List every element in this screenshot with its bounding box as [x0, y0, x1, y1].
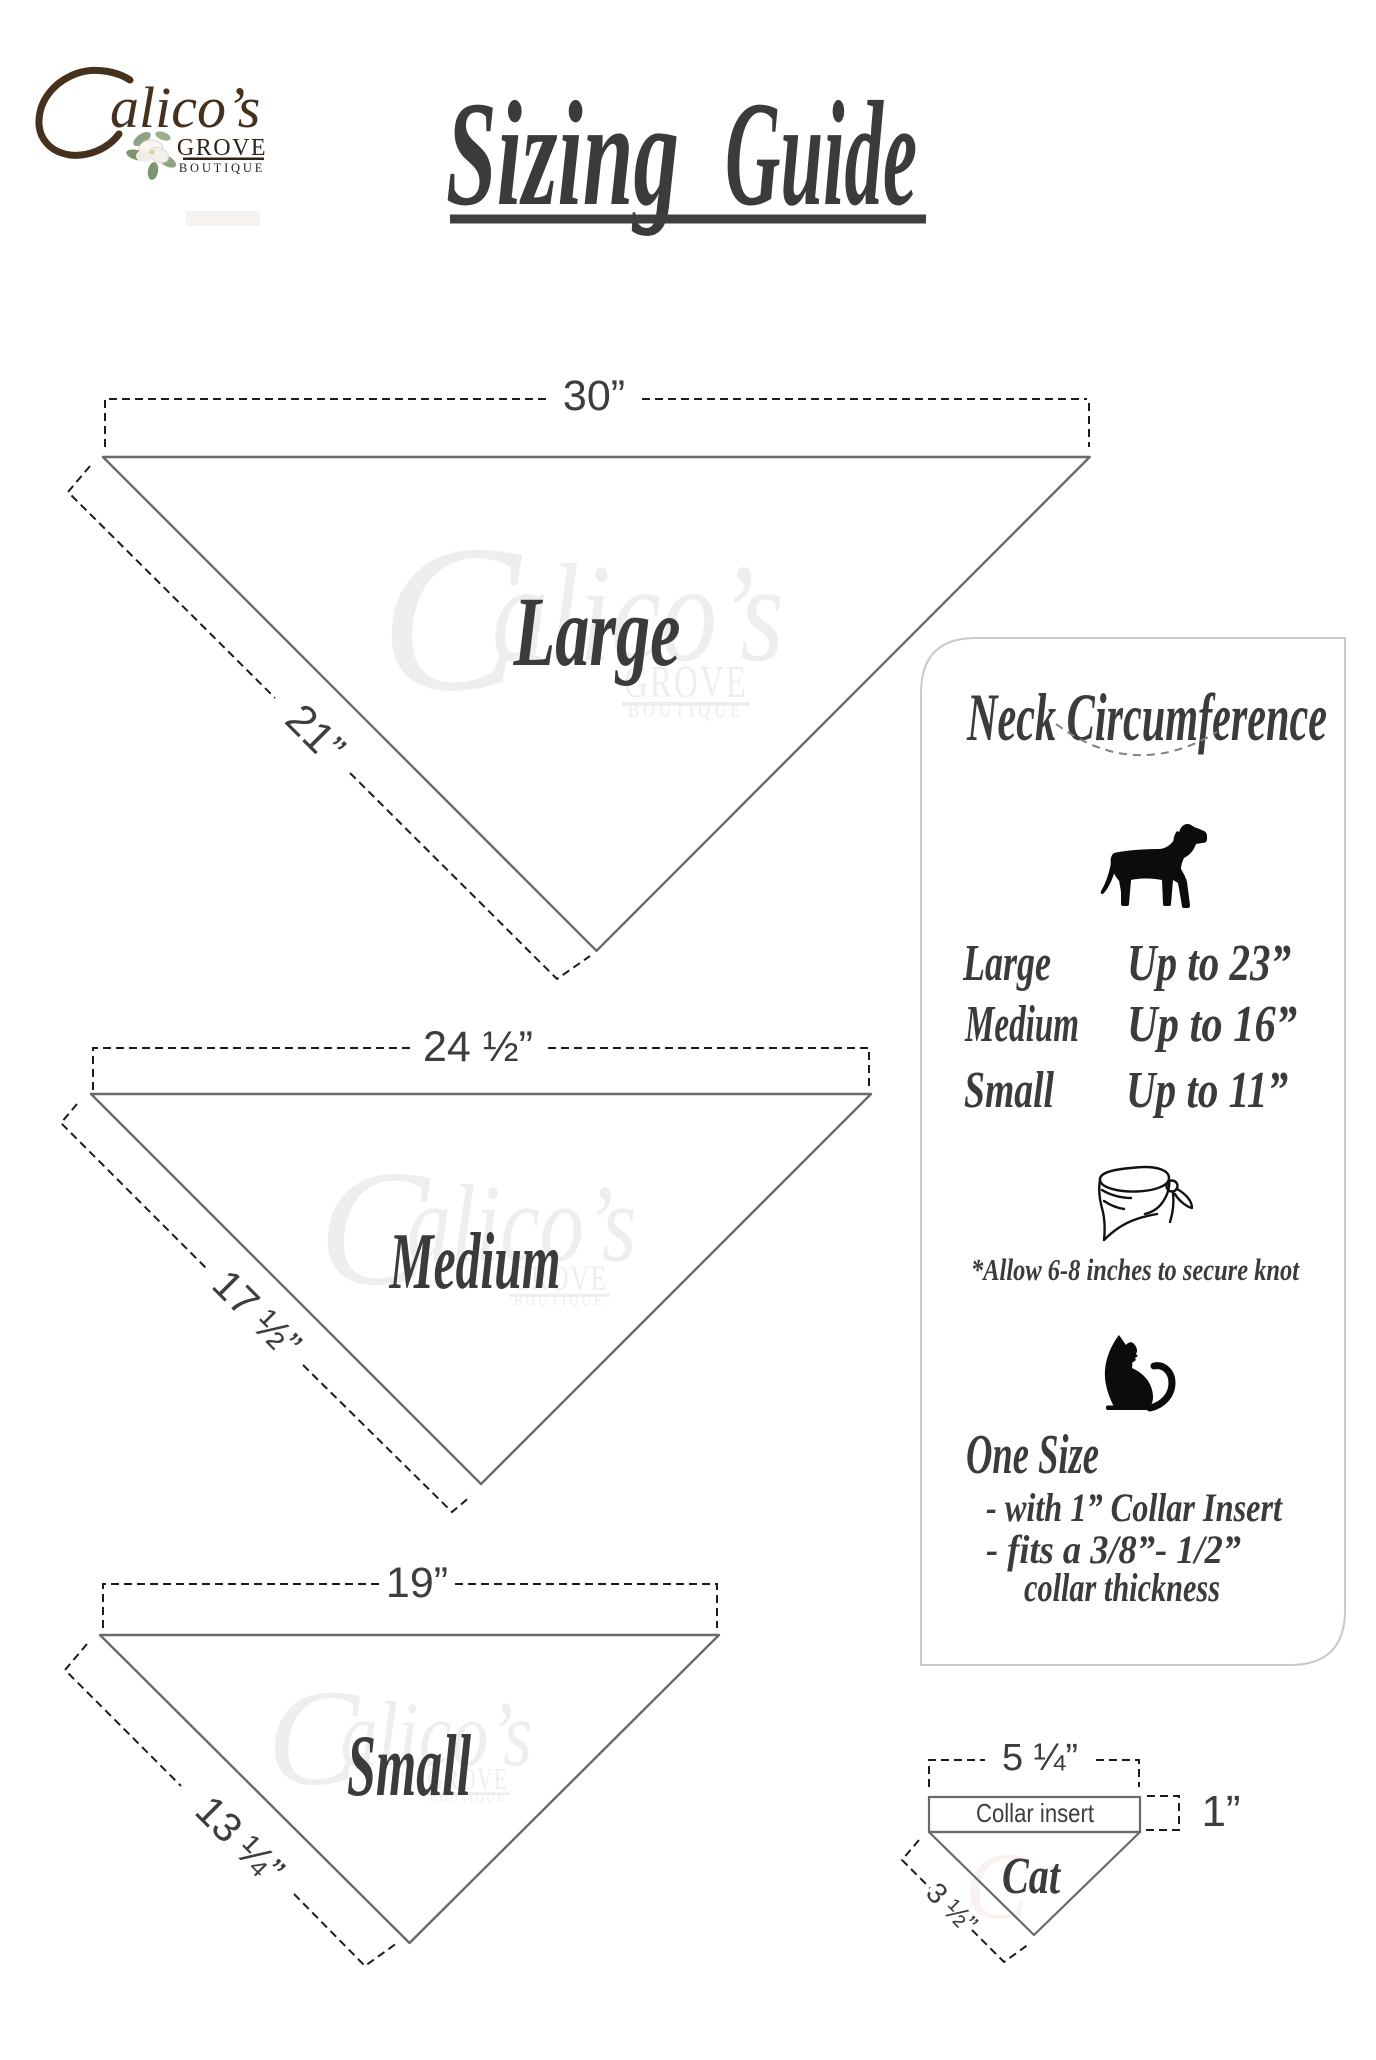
svg-text:5 ¼”: 5 ¼”: [1002, 1737, 1078, 1779]
svg-text:*Allow 6-8 inches to secure kn: *Allow 6-8 inches to secure knot: [971, 1252, 1300, 1287]
svg-text:Up to 16”: Up to 16”: [1127, 996, 1297, 1053]
svg-text:Large: Large: [513, 576, 681, 687]
svg-text:30”: 30”: [563, 372, 625, 420]
svg-text:Collar insert: Collar insert: [976, 1798, 1095, 1828]
svg-text:24 ½”: 24 ½”: [423, 1023, 533, 1071]
svg-text:alico’s: alico’s: [110, 75, 260, 140]
svg-text:Medium: Medium: [388, 1218, 560, 1306]
svg-text:1”: 1”: [1201, 1787, 1240, 1836]
svg-text:Guide: Guide: [725, 71, 917, 237]
svg-text:Medium: Medium: [964, 996, 1079, 1053]
svg-text:- with 1” Collar Insert: - with 1” Collar Insert: [986, 1485, 1284, 1530]
svg-text:collar thickness: collar thickness: [1024, 1565, 1220, 1610]
svg-text:Up to 11”: Up to 11”: [1126, 1062, 1288, 1119]
svg-text:19”: 19”: [386, 1559, 448, 1607]
svg-text:BOUTIQUE: BOUTIQUE: [179, 161, 265, 175]
svg-text:Neck Circumference: Neck Circumference: [966, 679, 1327, 755]
svg-text:Small: Small: [964, 1062, 1054, 1119]
svg-text:GROVE: GROVE: [177, 135, 267, 161]
svg-text:Sizing: Sizing: [446, 71, 679, 237]
svg-text:Up to 23”: Up to 23”: [1127, 935, 1291, 992]
svg-text:Large: Large: [962, 935, 1051, 992]
svg-text:One Size: One Size: [966, 1424, 1099, 1486]
svg-text:Small: Small: [347, 1718, 471, 1815]
svg-text:Cat: Cat: [1002, 1848, 1061, 1905]
